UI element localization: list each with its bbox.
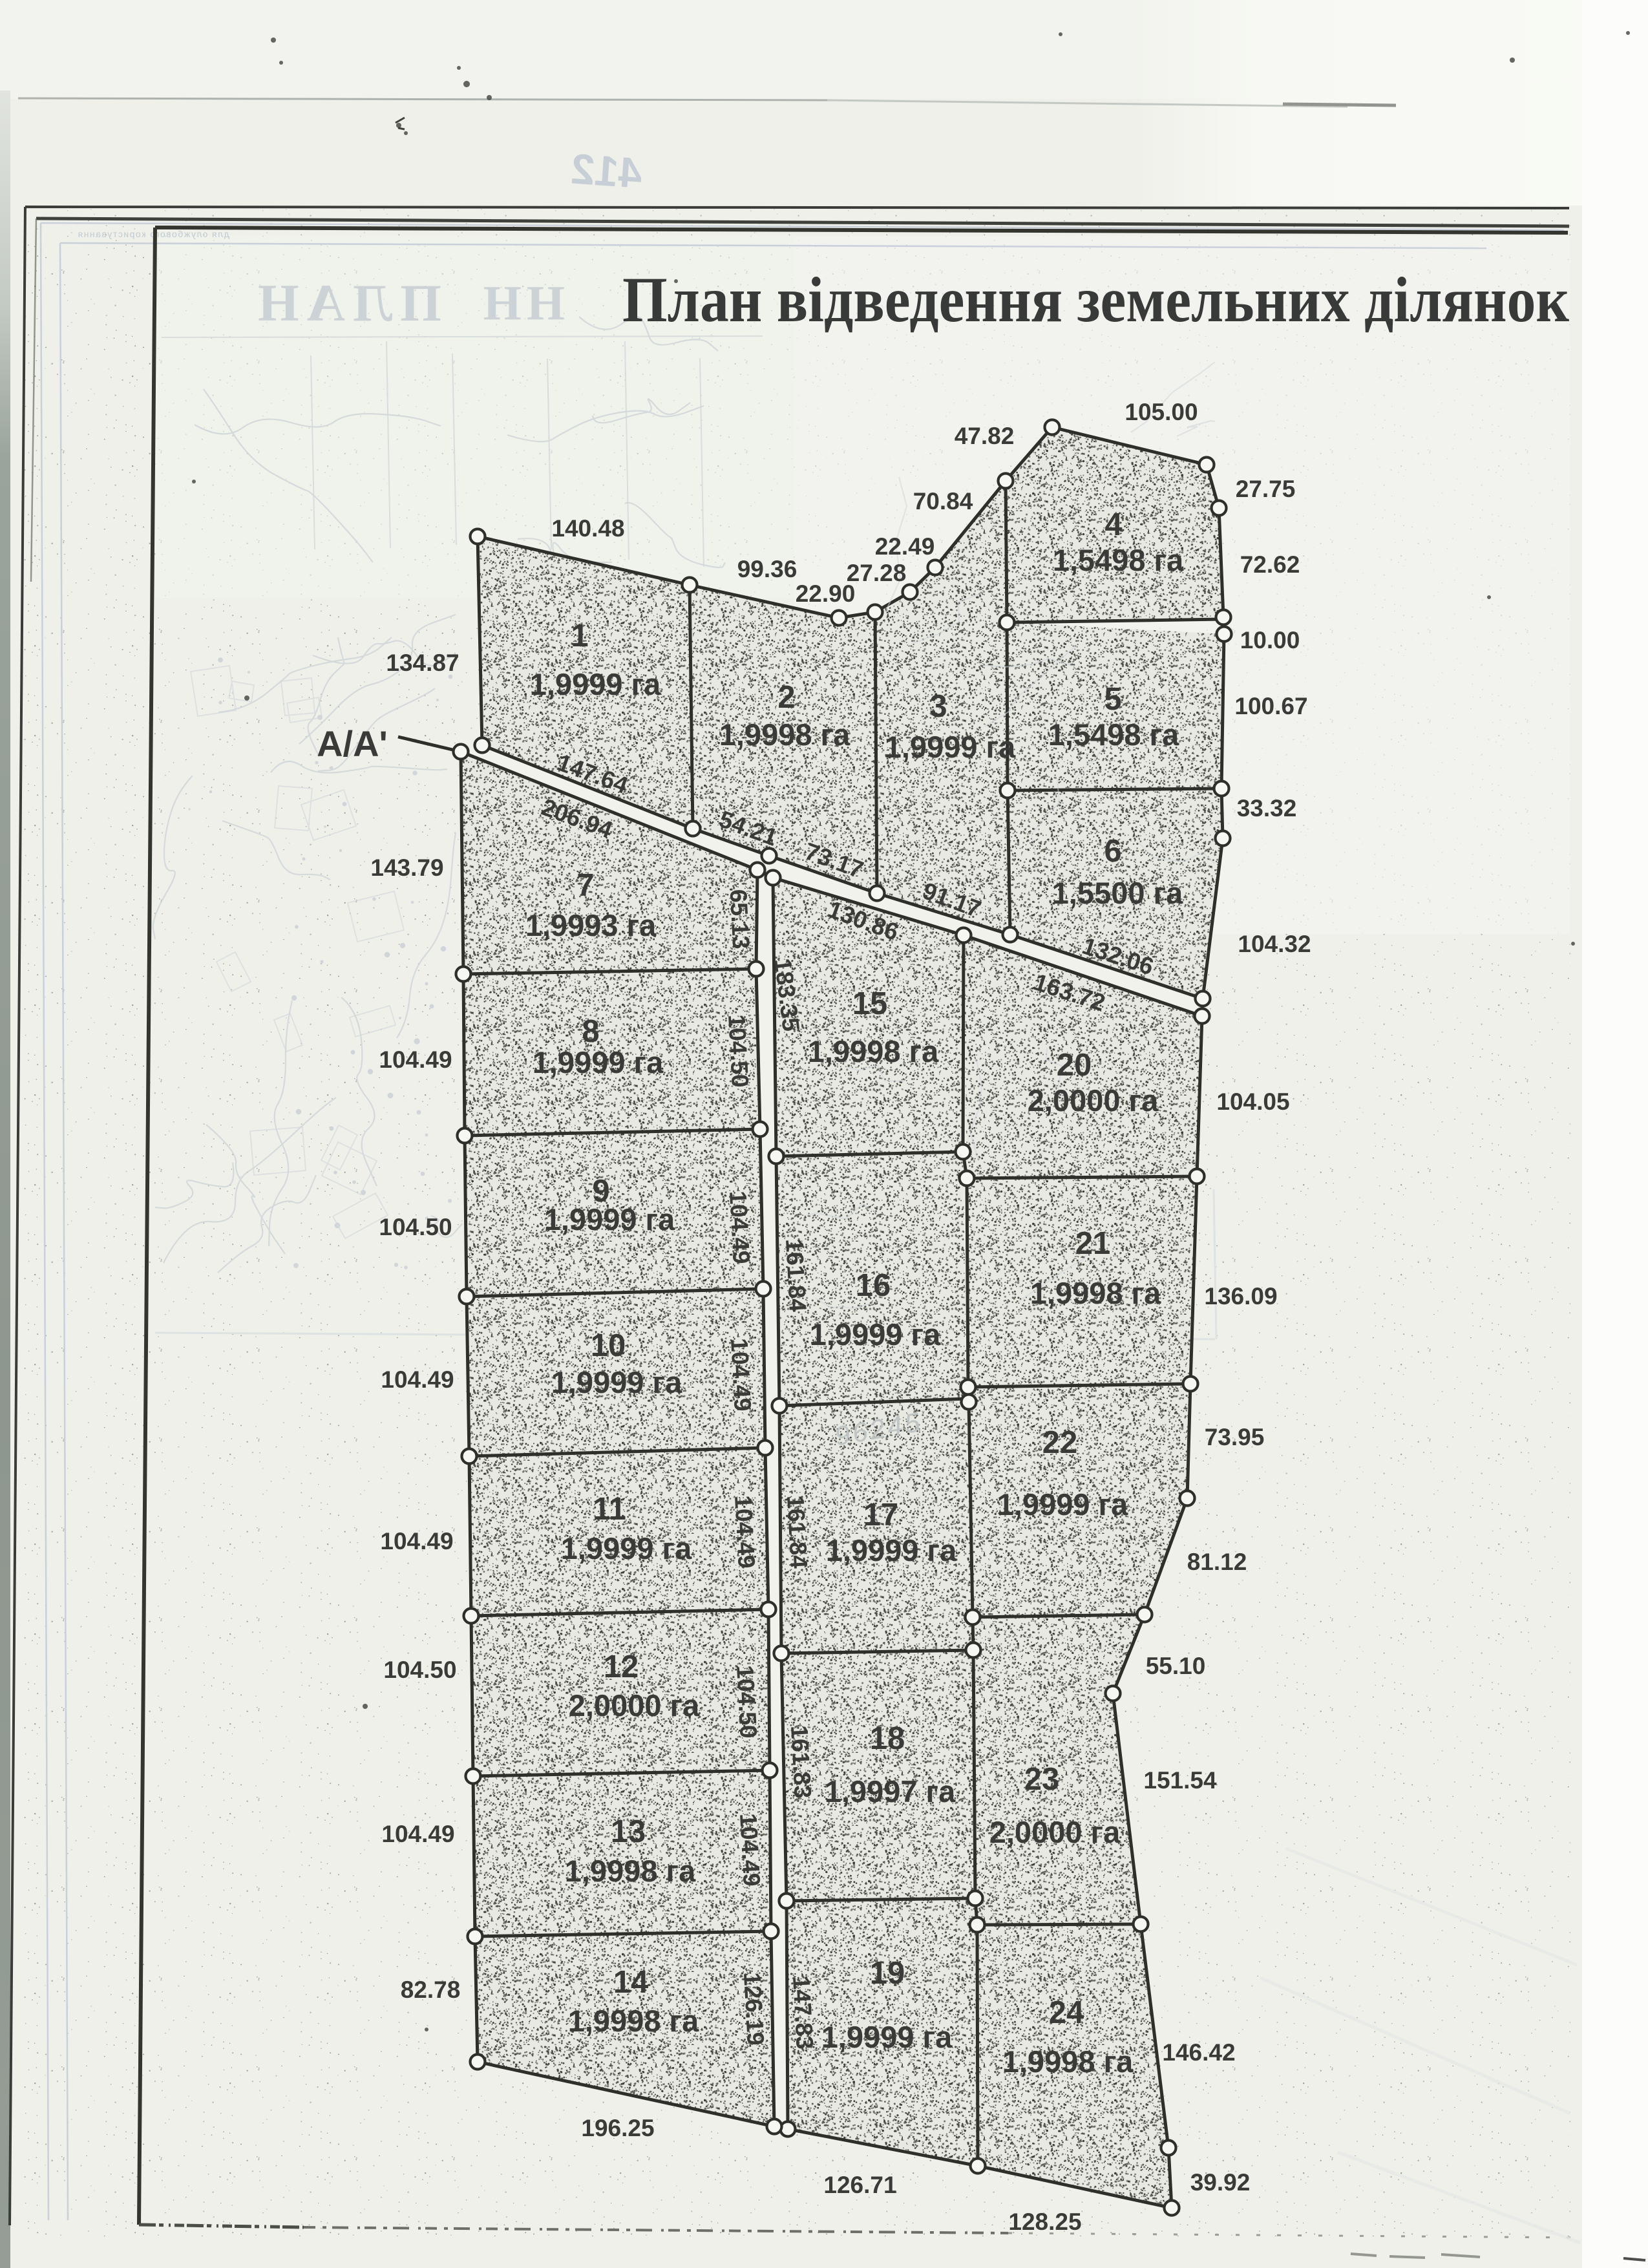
svg-text:73.95: 73.95 [1205, 1424, 1265, 1450]
svg-text:104.49: 104.49 [726, 1337, 756, 1412]
svg-text:13: 13 [611, 1814, 646, 1849]
svg-text:1,9999 га: 1,9999 га [821, 2020, 953, 2054]
svg-text:6: 6 [1104, 834, 1121, 869]
svg-text:7: 7 [576, 868, 594, 903]
svg-text:104.49: 104.49 [379, 1046, 452, 1073]
svg-text:НН: НН [478, 276, 565, 330]
svg-text:128.25: 128.25 [1008, 2209, 1081, 2235]
svg-text:1,5498 га: 1,5498 га [1048, 717, 1179, 752]
svg-text:81.12: 81.12 [1187, 1549, 1247, 1575]
svg-text:24: 24 [1049, 1995, 1084, 2030]
svg-text:3: 3 [929, 689, 947, 724]
svg-text:146.42: 146.42 [1162, 2039, 1235, 2066]
svg-text:22.49: 22.49 [875, 533, 935, 560]
svg-text:104.50: 104.50 [732, 1664, 762, 1739]
svg-text:5: 5 [1104, 682, 1121, 717]
svg-text:104.49: 104.49 [724, 1190, 755, 1264]
svg-text:16: 16 [856, 1268, 891, 1303]
svg-text:1,9999 га: 1,9999 га [551, 1365, 682, 1399]
svg-text:161.84: 161.84 [782, 1494, 812, 1569]
svg-text:104.50: 104.50 [723, 1013, 754, 1088]
svg-text:1,9998 га: 1,9998 га [808, 1034, 939, 1068]
svg-text:19: 19 [870, 1956, 905, 1991]
svg-text:8: 8 [582, 1014, 599, 1049]
svg-text:104.49: 104.49 [381, 1366, 454, 1393]
svg-text:72.62: 72.62 [1240, 551, 1300, 578]
svg-text:27.75: 27.75 [1236, 476, 1296, 502]
svg-text:104.49: 104.49 [381, 1821, 454, 1847]
svg-text:82.78: 82.78 [401, 1977, 461, 2003]
svg-text:1,9999 га: 1,9999 га [561, 1531, 692, 1565]
svg-text:1: 1 [571, 619, 588, 653]
svg-text:143.79: 143.79 [370, 854, 443, 881]
svg-text:20: 20 [1057, 1048, 1092, 1083]
svg-text:10.00: 10.00 [1240, 627, 1300, 653]
svg-text:17: 17 [863, 1498, 899, 1532]
svg-text:100.67: 100.67 [1234, 693, 1307, 719]
svg-text:10: 10 [591, 1328, 626, 1363]
svg-text:2,0000 га: 2,0000 га [569, 1688, 700, 1722]
svg-text:1,9999 га: 1,9999 га [826, 1533, 957, 1567]
svg-text:134.87: 134.87 [386, 650, 459, 676]
svg-text:23: 23 [1024, 1762, 1060, 1797]
svg-text:1,9998 га: 1,9998 га [568, 2004, 699, 2038]
svg-text:15: 15 [852, 986, 888, 1021]
svg-text:65.13: 65.13 [725, 889, 755, 950]
svg-text:136.09: 136.09 [1204, 1283, 1277, 1309]
svg-text:104.50: 104.50 [383, 1657, 456, 1683]
svg-text:12: 12 [604, 1649, 639, 1684]
svg-text:1,9998 га: 1,9998 га [1002, 2044, 1134, 2079]
svg-text:1,5500 га: 1,5500 га [1052, 876, 1183, 910]
svg-text:412: 412 [569, 144, 644, 197]
svg-text:1,9999 га: 1,9999 га [885, 730, 1016, 764]
svg-text:4: 4 [1104, 507, 1122, 542]
svg-text:104.50: 104.50 [379, 1214, 452, 1240]
svg-text:196.25: 196.25 [581, 2115, 654, 2141]
svg-text:104.49: 104.49 [730, 1494, 760, 1569]
svg-text:104.49: 104.49 [380, 1528, 453, 1554]
svg-text:161.83: 161.83 [786, 1724, 816, 1799]
svg-text:105.00: 105.00 [1125, 399, 1198, 425]
svg-text:1,9999 га: 1,9999 га [530, 667, 661, 701]
svg-text:22: 22 [1042, 1425, 1078, 1460]
svg-text:47.82: 47.82 [955, 423, 1015, 449]
svg-text:99.36: 99.36 [737, 556, 798, 582]
svg-text:151.54: 151.54 [1143, 1767, 1217, 1794]
svg-text:А/А': А/А' [317, 723, 388, 764]
svg-text:104.49: 104.49 [735, 1812, 765, 1887]
svg-text:1,9999 га: 1,9999 га [544, 1202, 675, 1236]
svg-text:126.19: 126.19 [739, 1971, 769, 2046]
svg-text:1,5498 га: 1,5498 га [1053, 543, 1184, 577]
svg-text:1,9997 га: 1,9997 га [825, 1774, 956, 1808]
svg-text:140.48: 140.48 [551, 515, 624, 542]
svg-text:11: 11 [593, 1492, 626, 1527]
svg-text:104.05: 104.05 [1216, 1088, 1289, 1115]
svg-text:27.28: 27.28 [847, 560, 907, 586]
svg-text:21: 21 [1075, 1226, 1111, 1261]
svg-text:126.71: 126.71 [823, 2172, 896, 2198]
svg-text:1,9999 га: 1,9999 га [997, 1487, 1128, 1521]
svg-text:1,9998 га: 1,9998 га [719, 717, 850, 752]
svg-text:161.84: 161.84 [781, 1238, 811, 1313]
svg-text:18: 18 [870, 1721, 905, 1756]
svg-text:ПЛАН: ПЛАН [250, 273, 441, 332]
svg-text:14: 14 [613, 1965, 649, 2000]
svg-text:147.83: 147.83 [788, 1975, 818, 2050]
svg-text:70.84: 70.84 [913, 488, 973, 514]
svg-text:1,9998 га: 1,9998 га [1030, 1276, 1161, 1310]
svg-text:33.32: 33.32 [1237, 795, 1297, 821]
svg-text:2: 2 [777, 680, 795, 715]
svg-text:1,9993 га: 1,9993 га [525, 908, 657, 942]
svg-text:104.32: 104.32 [1238, 931, 1311, 957]
svg-text:1,9999 га: 1,9999 га [533, 1045, 664, 1079]
svg-text:39.92: 39.92 [1190, 2169, 1251, 2196]
svg-text:1,9998 га: 1,9998 га [565, 1854, 696, 1888]
svg-text:2,0000 га: 2,0000 га [989, 1815, 1121, 1849]
svg-text:План відведення земельних діля: План відведення земельних ділянок [622, 264, 1569, 335]
svg-text:2,0000 га: 2,0000 га [1028, 1083, 1159, 1118]
svg-text:1,9999 га: 1,9999 га [810, 1317, 941, 1351]
svg-text:55.10: 55.10 [1146, 1653, 1206, 1679]
